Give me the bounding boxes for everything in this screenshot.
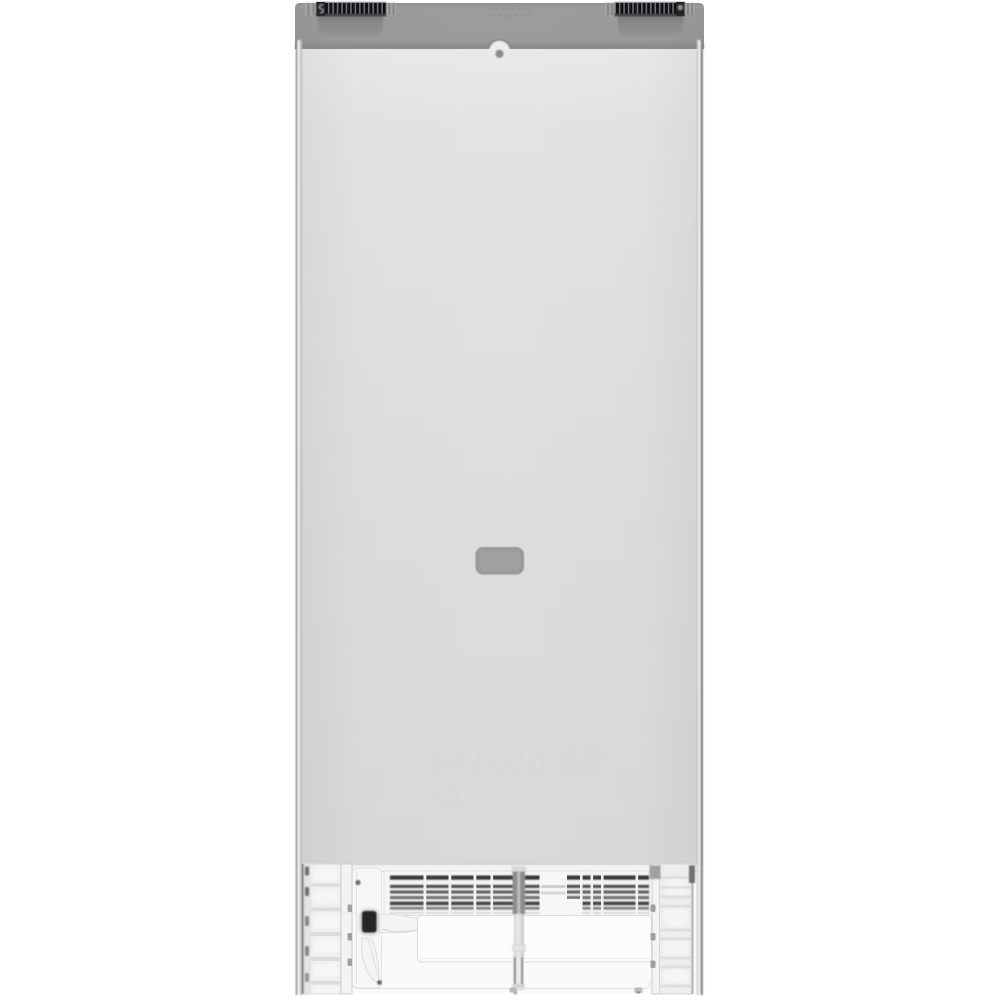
svg-text:FNsdd 52: FNsdd 52 [433,742,605,783]
svg-text:NC: NC [433,781,473,812]
svg-text:40 08 300 0617 22: 40 08 300 0617 22 [490,13,532,19]
svg-text:11 1111 888 17 2001: 11 1111 888 17 2001 [484,6,530,12]
